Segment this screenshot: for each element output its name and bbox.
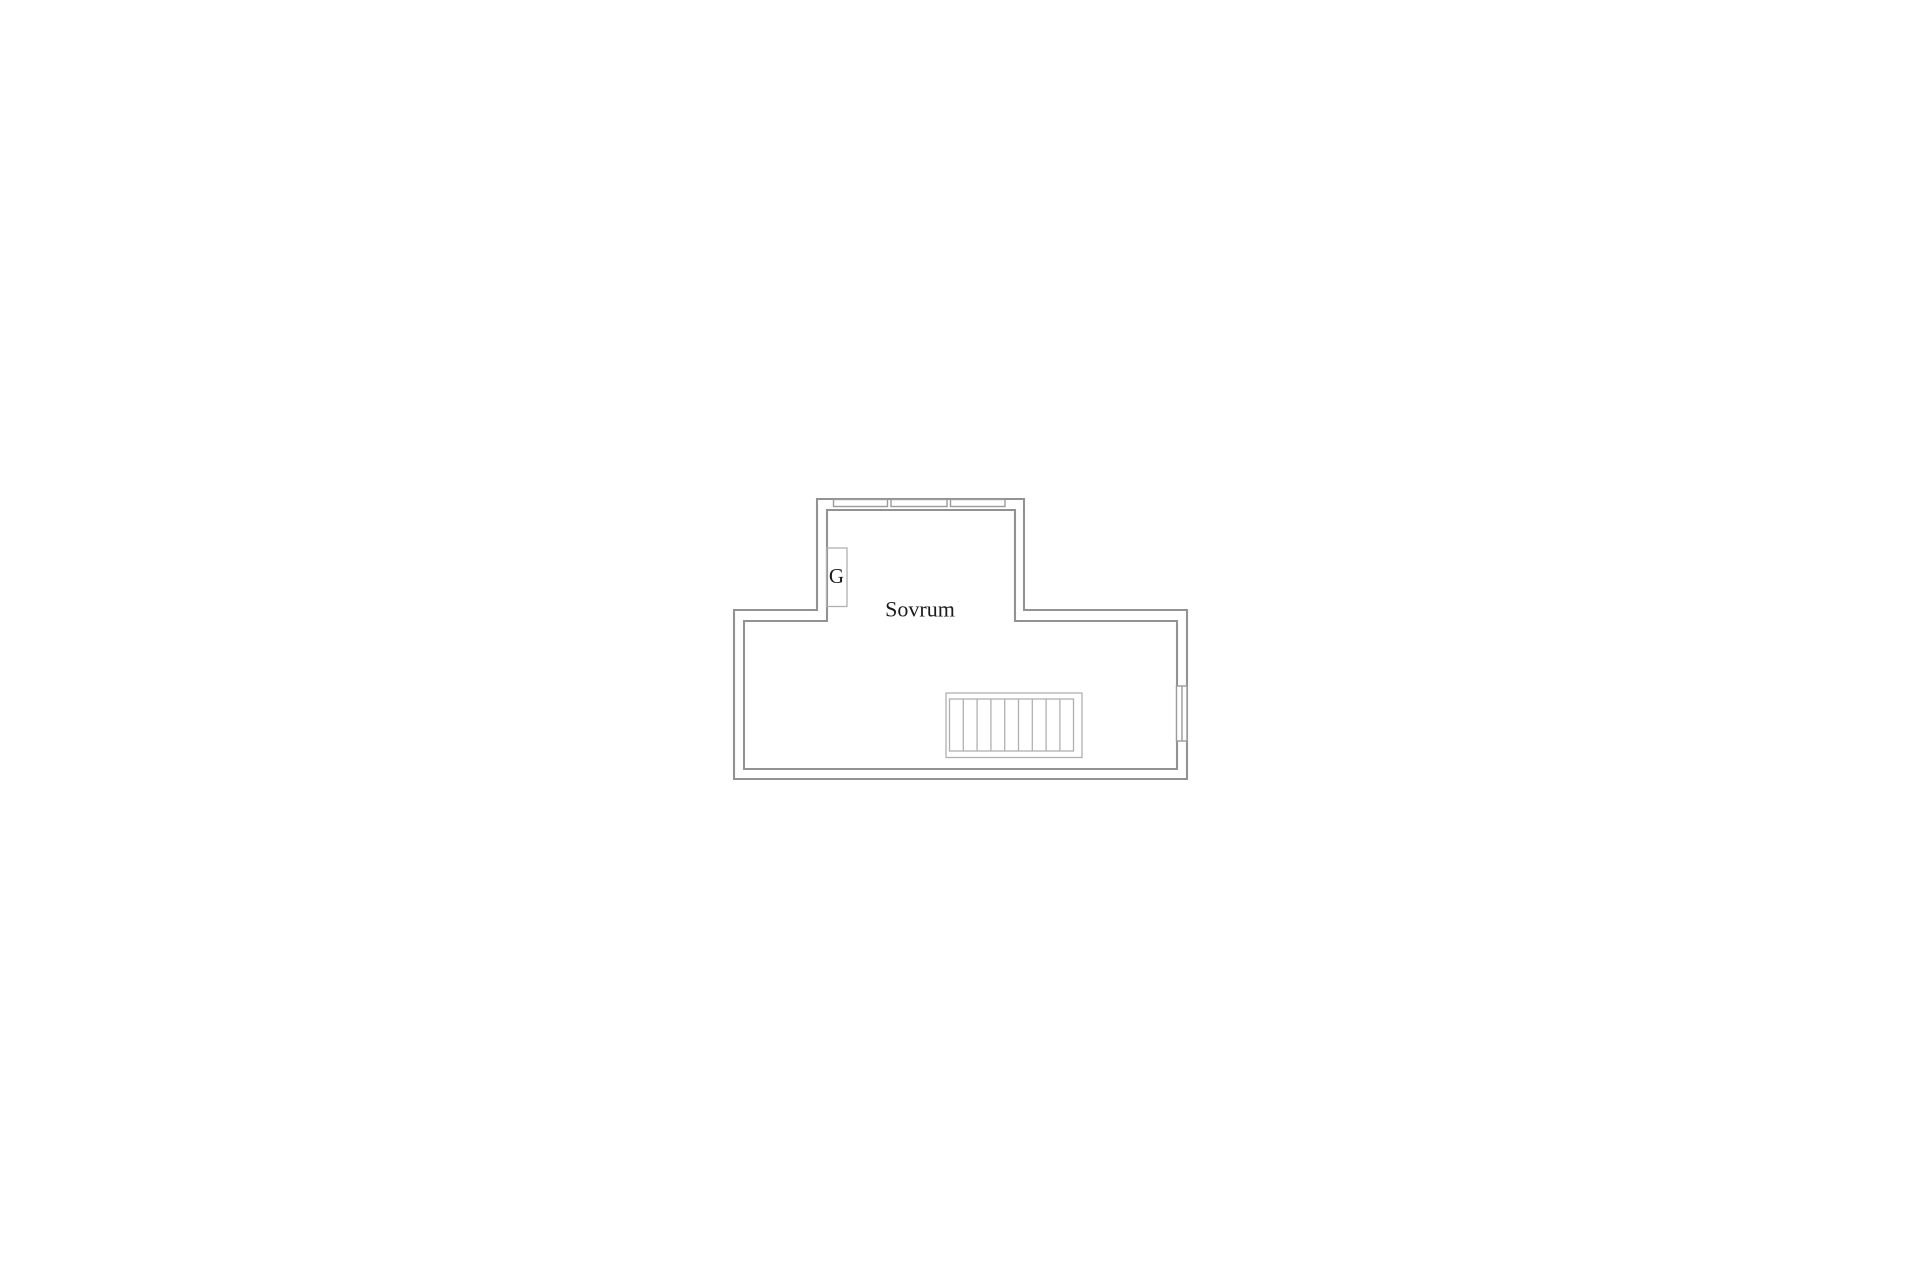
top-window-band: [834, 500, 1006, 507]
window-pane: [951, 500, 1006, 507]
staircase-inner-outline: [950, 699, 1074, 751]
floorplan-page: G Sovrum: [0, 0, 1920, 1280]
staircase-outer-outline: [946, 693, 1082, 758]
floorplan-drawing: G Sovrum: [0, 0, 1920, 1280]
wardrobe-label: G: [829, 564, 844, 588]
staircase: [946, 693, 1082, 758]
window-pane: [891, 500, 947, 507]
outer-wall-outline: [734, 499, 1187, 779]
window-pane: [834, 500, 888, 507]
room-label: Sovrum: [885, 597, 955, 622]
inner-wall-outline: [744, 510, 1177, 769]
right-window: [1177, 686, 1188, 741]
